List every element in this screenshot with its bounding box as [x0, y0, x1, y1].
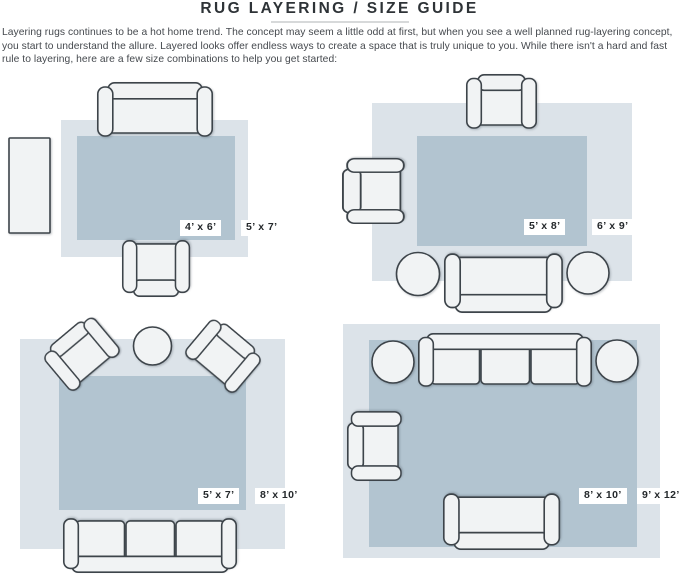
- outer-rug-size-label: 6’ x 9’: [592, 219, 633, 235]
- three-seat-sofa-top-view: [64, 519, 236, 572]
- inner-rug-size-label: 4’ x 6’: [180, 220, 221, 236]
- sofa-top-view: [98, 83, 212, 136]
- inner-rug-size-label: 5’ x 7’: [198, 488, 239, 504]
- outer-rug-size-label: 9’ x 12’: [637, 488, 679, 504]
- ottoman-circle: [596, 340, 638, 382]
- armchair-top-view: [343, 159, 404, 224]
- outer-rug-size-label: 8’ x 10’: [255, 488, 303, 504]
- rug-layout-diagram: [0, 0, 679, 575]
- outer-rug-size-label: 5’ x 7’: [241, 220, 282, 236]
- console-table-top-view: [9, 138, 50, 233]
- ottoman-circle: [372, 341, 414, 383]
- inner-rug-size-label: 5’ x 8’: [524, 219, 565, 235]
- three-seat-sofa-top-view: [419, 334, 591, 386]
- armchair-top-view: [467, 75, 536, 128]
- ottoman-circle: [567, 252, 609, 294]
- ottoman-circle: [134, 327, 172, 365]
- armchair-top-view: [348, 412, 401, 480]
- sofa-top-view: [445, 254, 562, 312]
- armchair-top-view: [123, 241, 190, 296]
- ottoman-circle: [397, 253, 440, 296]
- inner-rug-size-label: 8’ x 10’: [579, 488, 627, 504]
- rug-size-guide-page: RUG LAYERING / SIZE GUIDE Layering rugs …: [0, 0, 679, 575]
- sofa-top-view: [444, 494, 560, 549]
